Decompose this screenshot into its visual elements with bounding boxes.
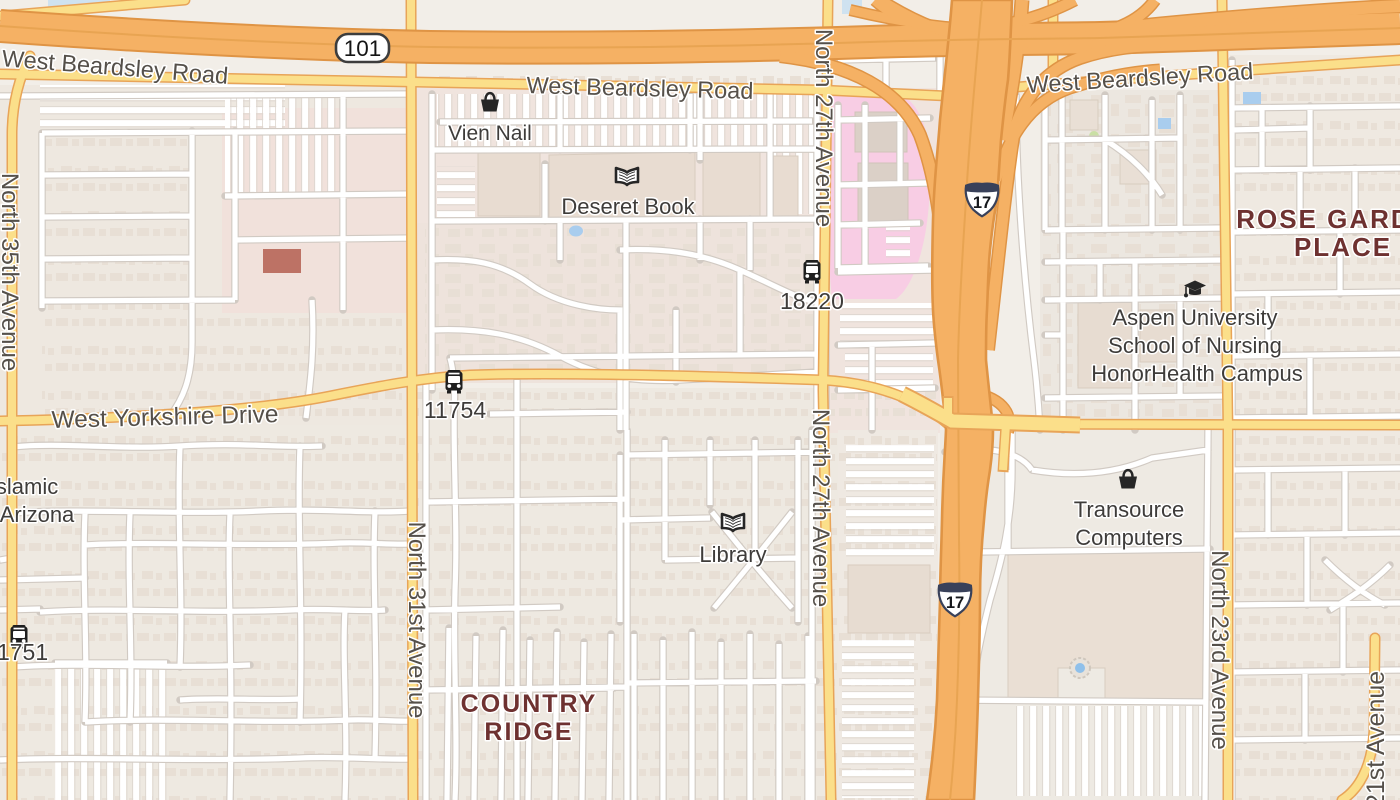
svg-text:11751: 11751 — [0, 639, 48, 665]
svg-text:COUNTRY: COUNTRY — [461, 690, 598, 718]
svg-text:North 27th Avenue: North 27th Avenue — [810, 29, 837, 227]
svg-text:North 35th Avenue: North 35th Avenue — [0, 173, 23, 371]
svg-text:101: 101 — [344, 36, 382, 61]
svg-text:21st Avenue: 21st Avenue — [1362, 671, 1390, 800]
svg-text:North 31st Avenue: North 31st Avenue — [403, 521, 430, 718]
svg-text:Computers: Computers — [1075, 525, 1183, 550]
svg-text:Arizona: Arizona — [0, 502, 75, 527]
svg-text:Library: Library — [699, 542, 766, 567]
svg-text:North 23rd Avenue: North 23rd Avenue — [1206, 550, 1233, 750]
svg-text:Transource: Transource — [1074, 497, 1184, 522]
svg-text:RIDGE: RIDGE — [484, 718, 573, 746]
svg-text:18220: 18220 — [780, 288, 844, 314]
svg-text:North 27th Avenue: North 27th Avenue — [807, 409, 834, 607]
svg-text:PLACE: PLACE — [1294, 232, 1392, 262]
svg-text:11754: 11754 — [424, 397, 486, 423]
svg-text:Islamic: Islamic — [0, 474, 58, 499]
svg-text:ROSE GARDEN: ROSE GARDEN — [1236, 204, 1400, 234]
svg-text:Aspen University: Aspen University — [1112, 305, 1277, 330]
svg-text:School of Nursing: School of Nursing — [1108, 333, 1282, 358]
svg-text:HonorHealth Campus: HonorHealth Campus — [1091, 361, 1303, 386]
svg-text:Vien Nail: Vien Nail — [448, 122, 532, 145]
svg-text:Deseret Book: Deseret Book — [561, 194, 695, 219]
